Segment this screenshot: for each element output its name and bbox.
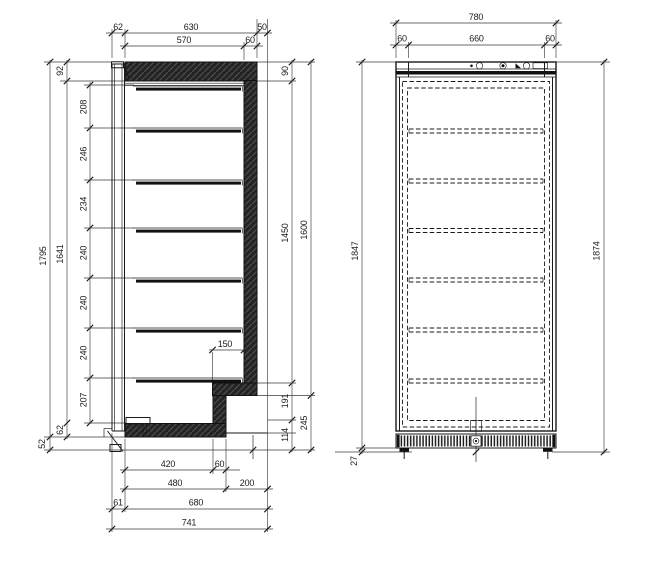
side-view-dimensions: 62 630 50 570 60 1795 52 92 1641 62 208 … xyxy=(37,19,315,532)
dim-side-rear-wall: 60 xyxy=(245,35,255,45)
control-panel xyxy=(470,63,547,69)
dim-side-overall-depth: 741 xyxy=(182,518,197,528)
rear-foot-centerline xyxy=(250,435,256,459)
hidden-shelf-line xyxy=(409,278,543,282)
dim-side-lower-wall: 60 xyxy=(215,459,225,469)
hidden-shelf-line xyxy=(409,129,543,133)
top-insulation xyxy=(125,62,257,81)
dim-side-spacing-3: 234 xyxy=(79,197,89,212)
door-section xyxy=(112,64,125,431)
dim-side-interior-depth: 570 xyxy=(177,35,192,45)
dim-side-spacing-5: 240 xyxy=(79,296,89,311)
hidden-shelf-line xyxy=(409,328,543,332)
control-wedge-icon xyxy=(516,63,522,68)
dim-side-overall-height: 1795 xyxy=(38,246,48,265)
dim-side-floor-thickness: 62 xyxy=(55,425,65,435)
dim-side-rear-overhang: 50 xyxy=(257,22,267,32)
shelf-bar xyxy=(133,86,243,92)
drawing-canvas: 62 630 50 570 60 1795 52 92 1641 62 208 … xyxy=(0,0,659,565)
dim-side-spacing-4: 240 xyxy=(79,246,89,261)
dim-side-wall-height: 1450 xyxy=(280,223,290,242)
hidden-shelf-line xyxy=(409,179,543,183)
dim-side-body-depth-bottom: 680 xyxy=(189,498,204,508)
dim-side-floor-span: 480 xyxy=(168,478,183,488)
dim-front-center-span: 660 xyxy=(469,34,484,44)
hidden-interior-lines xyxy=(403,82,550,428)
dim-front-height-left: 1847 xyxy=(350,241,360,260)
dim-side-outer-height: 1600 xyxy=(299,220,309,239)
shelf-bar xyxy=(133,180,243,186)
shelf-bar xyxy=(133,328,243,334)
dim-side-step-depth: 150 xyxy=(218,339,233,349)
dim-side-interior-floor: 420 xyxy=(161,459,176,469)
door-top-gasket xyxy=(396,71,556,75)
dim-side-top-panel-right: 90 xyxy=(280,66,290,76)
floor-insulation xyxy=(125,424,226,438)
dim-side-top-panel: 92 xyxy=(55,66,65,76)
dim-front-overall-width: 780 xyxy=(469,12,484,22)
cabinet-outline xyxy=(396,62,556,431)
shelf-bar xyxy=(133,278,243,284)
dim-side-recess-height: 245 xyxy=(299,416,309,431)
control-knob-icon xyxy=(476,63,482,69)
dim-side-interior-height: 1641 xyxy=(55,244,65,263)
dim-side-door-thickness-bottom: 61 xyxy=(113,498,123,508)
recess-wall-insulation xyxy=(213,396,226,424)
dim-front-hinge-right: 60 xyxy=(545,34,555,44)
ventilation-grille xyxy=(396,434,556,448)
dim-side-recess-lower: 114 xyxy=(280,428,290,442)
dim-side-door-thickness: 62 xyxy=(113,22,123,32)
step-insulation xyxy=(213,383,258,396)
shelf-bar xyxy=(133,128,243,134)
front-view-dimensions: 780 60 660 60 1847 27 1874 xyxy=(335,12,610,466)
rear-wall-insulation xyxy=(244,81,257,384)
control-dot-icon xyxy=(470,65,473,68)
dim-side-spacing-1: 208 xyxy=(79,100,89,115)
dim-side-plinth: 52 xyxy=(37,439,47,449)
dim-front-overall-height: 1874 xyxy=(592,241,602,260)
dim-side-recess-depth: 200 xyxy=(240,478,255,488)
dim-side-spacing-6: 240 xyxy=(79,346,89,361)
hidden-shelf-line xyxy=(409,229,543,233)
dim-side-spacing-2: 246 xyxy=(79,147,89,162)
dim-front-hinge-left: 60 xyxy=(397,34,407,44)
shelf-bar xyxy=(133,228,243,234)
display-window xyxy=(533,63,548,69)
hidden-shelf-line xyxy=(409,379,543,383)
dim-front-plinth: 27 xyxy=(349,456,359,466)
dim-side-body-depth: 630 xyxy=(184,22,199,32)
dim-side-spacing-7: 207 xyxy=(79,393,89,408)
technical-drawing: 62 630 50 570 60 1795 52 92 1641 62 208 … xyxy=(0,0,659,565)
front-view-body xyxy=(396,62,556,462)
control-switch-icon xyxy=(523,63,529,69)
side-view-body xyxy=(104,62,268,459)
